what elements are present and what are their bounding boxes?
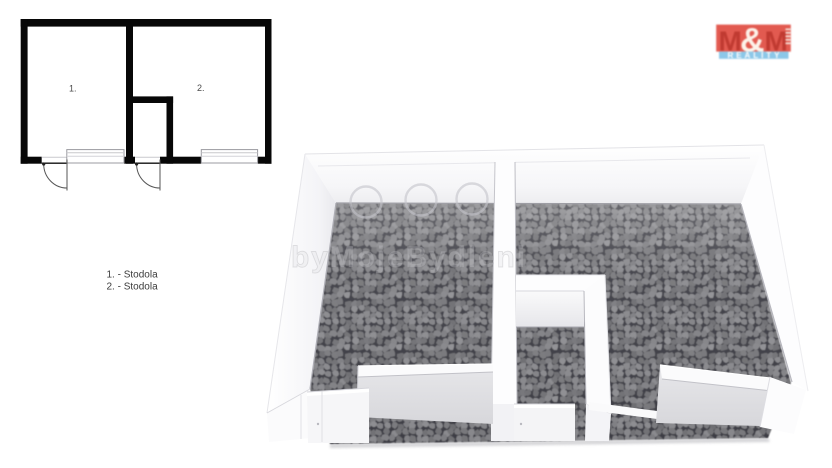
svg-text:1.: 1. [69, 84, 77, 94]
svg-text:2. - Stodola: 2. - Stodola [107, 282, 159, 293]
svg-text:2.: 2. [197, 83, 205, 93]
svg-text:1. - Stodola: 1. - Stodola [107, 270, 159, 281]
svg-text:byMojeBydleni: byMojeBydleni [291, 241, 525, 274]
